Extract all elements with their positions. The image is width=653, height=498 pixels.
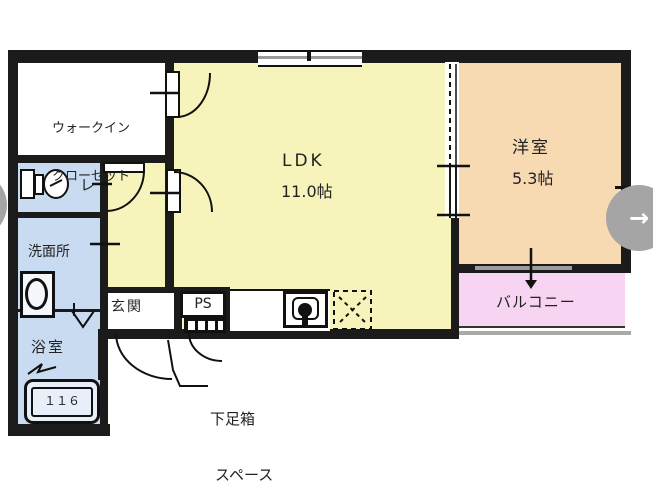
arrow-right-icon: → bbox=[629, 204, 649, 232]
label-shoe-note-line2: スペース bbox=[215, 466, 273, 485]
shower-icon bbox=[28, 364, 56, 374]
label-shoe-note-line1: 下足箱 bbox=[210, 410, 273, 429]
fridge-space-x2 bbox=[339, 297, 366, 323]
toilet-icon-seat bbox=[35, 175, 43, 194]
label-walk-in-closet: ウォークイン クローゼット bbox=[52, 88, 130, 218]
label-bathroom: 浴室 bbox=[31, 338, 65, 357]
bathtub-icon: １１６ bbox=[24, 379, 100, 424]
washing-machine-drum bbox=[25, 278, 48, 310]
washing-machine-icon bbox=[20, 271, 55, 318]
label-western-size: 5.3帖 bbox=[512, 169, 553, 189]
shoe-note-leader bbox=[168, 340, 208, 386]
kitchen-faucet-dot bbox=[298, 303, 312, 317]
label-western: 洋室 bbox=[512, 138, 550, 159]
bathtub-inner: １１６ bbox=[31, 387, 93, 417]
label-toilet: レ bbox=[80, 176, 95, 195]
label-entrance: 玄関 bbox=[111, 299, 143, 317]
label-ldk-size: 11.0帖 bbox=[281, 182, 333, 202]
kitchen-faucet-stem bbox=[302, 316, 308, 328]
shoe-cabinet-slot bbox=[188, 321, 195, 330]
door-arc-entrance bbox=[116, 333, 172, 379]
floorplan-image: PS １１６ ウォークイン クローゼット レ 洗面所 浴室 玄関 LDK 11.… bbox=[0, 0, 653, 498]
door-arc-shoebox bbox=[189, 333, 222, 361]
pipe-space-box: PS bbox=[180, 291, 226, 318]
label-wic-line1: ウォークイン bbox=[52, 121, 130, 137]
plan-symbols bbox=[0, 0, 653, 498]
label-shoe-note: 下足箱 スペース bbox=[210, 372, 273, 498]
balcony-arrow-head bbox=[525, 280, 537, 289]
door-leaf-hall-ldk bbox=[167, 170, 180, 212]
folding-door-bathroom bbox=[72, 311, 94, 327]
door-arc-wic bbox=[177, 73, 210, 117]
shoe-cabinet-slot bbox=[208, 321, 215, 330]
label-balcony: バルコニー bbox=[496, 293, 576, 312]
door-leaf-wic bbox=[166, 72, 179, 117]
label-washroom: 洗面所 bbox=[28, 244, 70, 262]
bathtub-size-label: １１６ bbox=[44, 394, 80, 409]
label-ldk: LDK bbox=[282, 151, 325, 172]
shoe-cabinet-icon bbox=[184, 318, 226, 333]
toilet-icon bbox=[21, 170, 34, 198]
shoe-cabinet-slot bbox=[218, 321, 223, 330]
pipe-space-label: PS bbox=[194, 296, 211, 314]
shoe-cabinet-slot bbox=[198, 321, 205, 330]
